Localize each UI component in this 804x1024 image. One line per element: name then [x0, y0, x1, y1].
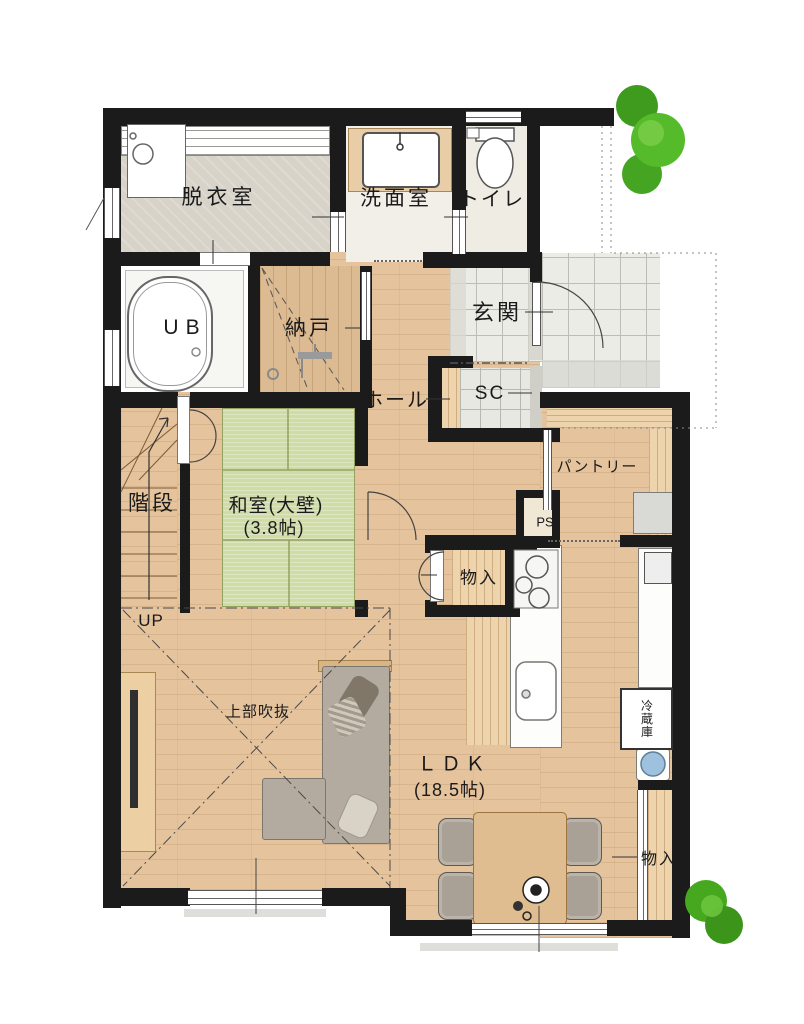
wall [390, 888, 406, 936]
wall [530, 252, 542, 282]
window-shadow [420, 943, 618, 951]
toilet-window [466, 111, 521, 123]
kitchen-bar-counter [466, 608, 510, 745]
wall [103, 888, 190, 906]
bath-window [104, 330, 120, 386]
label-senmen: 洗面室 [360, 182, 432, 212]
wall [180, 463, 190, 613]
porch-step-shadow [542, 360, 660, 388]
label-up: UP [138, 611, 164, 631]
wall [355, 404, 368, 466]
kitchen-appliance [644, 552, 672, 584]
tree [616, 85, 685, 194]
wall [505, 547, 517, 610]
label-kaidan: 階段 [128, 487, 176, 517]
label-ub: UB [163, 316, 206, 340]
wall [190, 392, 372, 408]
wall [527, 108, 540, 268]
ub-folding-door [200, 252, 250, 266]
datsui-senmen-door [330, 212, 346, 252]
floor-plan: 脱衣室 洗面室 トイレ UB 納戸 玄関 ホール SC パントリー PS 階段 … [0, 0, 804, 1024]
label-nando: 納戸 [285, 312, 333, 342]
label-washitsu-size: (3.8帖) [243, 514, 304, 540]
nando-sliding-door [361, 272, 371, 340]
label-ldk: ＬＤＫ [417, 748, 489, 777]
wall [406, 920, 472, 936]
tree [685, 880, 743, 944]
window-shadow [184, 909, 326, 917]
stairs-double-door [177, 396, 190, 464]
dining-chair [562, 818, 602, 866]
wall [620, 535, 680, 547]
wall [248, 266, 260, 392]
label-monoire-east: 物入 [641, 845, 677, 869]
sc-shoe-shelf [440, 368, 460, 428]
toilet-door [452, 210, 466, 254]
dining-table [473, 812, 567, 925]
label-toilet: トイレ [459, 183, 525, 212]
tv [130, 690, 138, 808]
trash-bin-box [636, 748, 670, 781]
entrance-door-leaf [532, 282, 541, 346]
label-pantry: パントリー [557, 456, 638, 477]
dining-chair [438, 818, 478, 866]
kitchen-opening-dotted [548, 540, 620, 542]
label-ldk-size: (18.5帖) [414, 776, 486, 802]
label-fukinuke: 上部吹抜 [226, 701, 290, 722]
label-monoire-kitchen: 物入 [460, 564, 498, 589]
vanity-sink [362, 132, 440, 188]
label-hall: ホール [363, 384, 429, 413]
hall-opening-dotted [374, 260, 422, 262]
wall [355, 600, 368, 617]
wall [103, 392, 178, 408]
wall [540, 392, 690, 408]
label-sc: SC [475, 383, 505, 405]
washing-machine [127, 124, 186, 198]
casement-symbol [86, 198, 104, 230]
wall [423, 252, 542, 268]
label-reizouko: 冷蔵庫 [639, 700, 656, 739]
pantry-shelf-top [547, 408, 675, 428]
wall [607, 920, 690, 936]
wall [330, 126, 346, 212]
label-genkan: 玄関 [472, 295, 522, 327]
tv-board [120, 672, 156, 852]
pantry-cabinet [633, 492, 674, 534]
wall [428, 428, 560, 442]
label-datsui: 脱衣室 [182, 181, 257, 211]
living-window [188, 890, 322, 905]
wall [638, 780, 688, 790]
dining-chair [438, 872, 478, 920]
pantry-sliding-door [543, 430, 552, 510]
label-ps: PS [536, 515, 553, 530]
dining-window [472, 923, 607, 935]
datsui-window [104, 188, 120, 238]
dining-chair [562, 872, 602, 920]
kitchen-counter [510, 545, 562, 748]
sofa-bottom [262, 778, 326, 840]
kitchen-closet-doors [430, 550, 444, 602]
genkan-step-strip [450, 262, 466, 360]
